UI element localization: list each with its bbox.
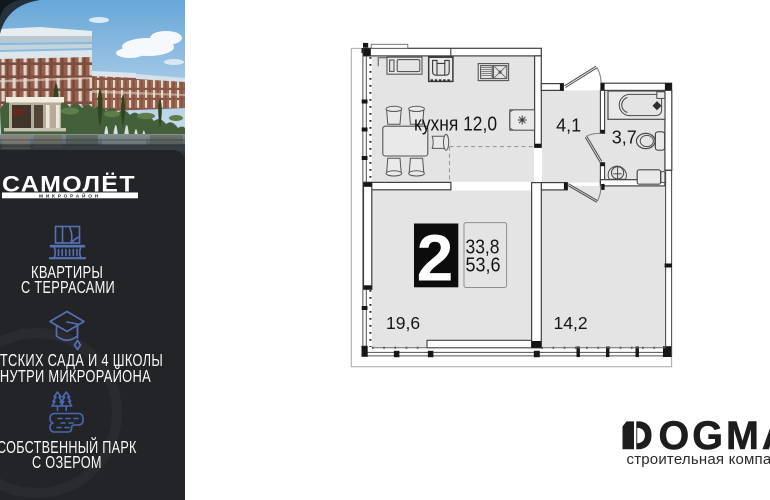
svg-text:53,6: 53,6 — [466, 255, 501, 277]
svg-text:19,6: 19,6 — [386, 313, 420, 333]
svg-text:строительная компания: строительная компания — [627, 451, 770, 468]
svg-text:4,1: 4,1 — [556, 116, 581, 136]
svg-text:кухня 12,0: кухня 12,0 — [414, 113, 497, 136]
svg-text:14,2: 14,2 — [554, 313, 588, 333]
svg-text:2: 2 — [417, 221, 454, 295]
svg-text:3,7: 3,7 — [612, 128, 637, 148]
